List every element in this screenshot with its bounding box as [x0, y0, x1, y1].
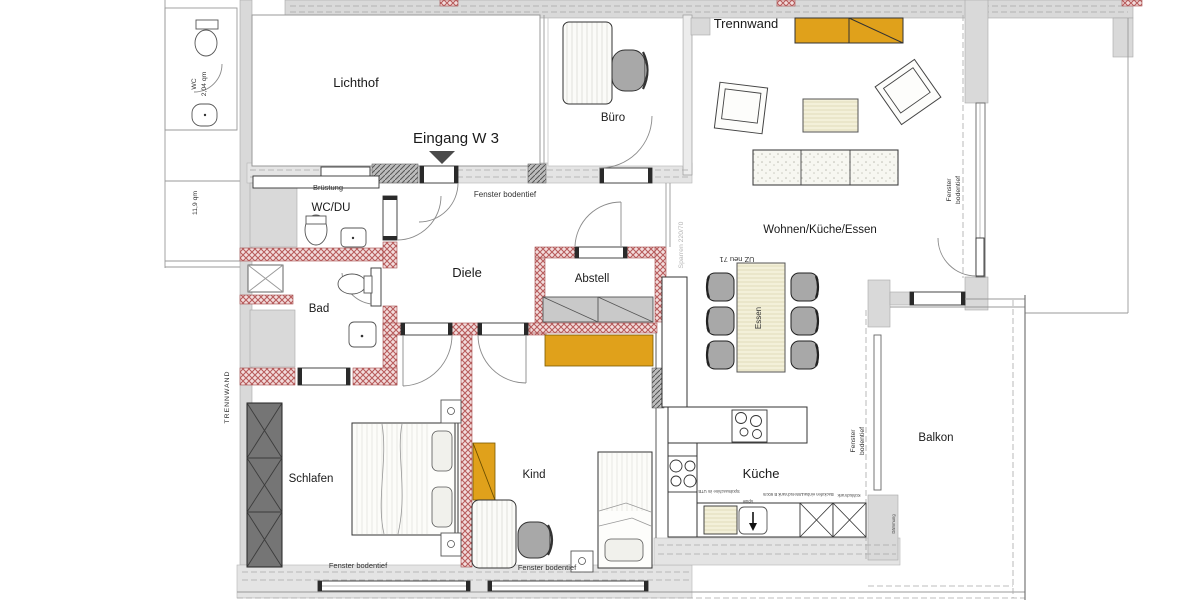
buero-desk: [563, 22, 612, 104]
label-spuele: Spüle: [742, 499, 753, 504]
abstell-label: Abstell: [575, 273, 610, 285]
sink-drainer: [704, 506, 737, 534]
new-wall-bad-bottom-left: [240, 368, 295, 385]
balkon-label: Balkon: [918, 432, 953, 444]
label-backofen: Backofen einbau: [802, 492, 834, 497]
toilet-tank-icon: [196, 20, 218, 29]
dining-chair-r1: [791, 273, 818, 301]
kueche-label: Küche: [743, 466, 780, 481]
balcony-left-wall-block: [868, 280, 890, 327]
abstell-door-arc: [575, 202, 621, 246]
lichthof-area: [252, 15, 683, 183]
bruestung-pier-2: [528, 164, 546, 183]
armchair-1: [714, 82, 767, 134]
entrance-door-arc: [419, 183, 458, 222]
wohnen-label: Wohnen/Küche/Essen: [763, 224, 877, 236]
bathtub: [298, 368, 350, 385]
kind-pillow: [605, 539, 643, 561]
abstell-cap-right: [623, 247, 627, 258]
living-furniture: [714, 18, 940, 185]
nightstand-1: [441, 400, 461, 423]
kind-door-arc: [478, 335, 526, 383]
kitchen-tall-unit: [662, 277, 687, 407]
schlafen-door-sill: [401, 323, 452, 335]
fenster-bodentief-kind: Fenster bodentief: [518, 563, 577, 572]
eingang-label: Eingang W 3: [413, 130, 499, 147]
new-wall-abstell-top-left: [535, 247, 575, 258]
wcdu-cap-top: [383, 196, 397, 200]
new-wall-bad-top: [240, 248, 383, 261]
new-wall-abstell-bottom: [530, 323, 657, 333]
entrance-cap-left: [420, 166, 424, 183]
bathtub-cap-right: [346, 368, 350, 385]
schlafen-window-cap-r: [466, 581, 470, 591]
toilet-bowl-icon: [195, 30, 217, 56]
label-unterschrank: Unterschrank B 60cm: [762, 492, 803, 497]
balcony-door-arc: [938, 238, 976, 276]
right-wall-upper: [965, 0, 988, 103]
kind-desk: [472, 500, 516, 568]
buero-cap-right: [648, 168, 652, 183]
area-11-9-label: 11,9 qm: [192, 191, 199, 215]
diele-label: Diele: [452, 265, 482, 280]
schlafen-cap-right: [448, 323, 452, 335]
wcdu-door-sill: [383, 196, 397, 240]
wcdu-toilet-tank-icon: [306, 216, 326, 224]
new-wall-diele-south-1: [383, 323, 401, 335]
dining-set: Essen: [707, 263, 818, 372]
buero-office-chair: [612, 50, 645, 91]
schlafen-furniture: [247, 400, 461, 567]
dining-chair-l1: [707, 273, 734, 301]
kitchen-counter-top: [668, 407, 807, 443]
kind-office-chair: [518, 522, 550, 558]
balcony-sill-cap-left: [910, 292, 914, 305]
balcony-door-leaf: [976, 238, 984, 276]
new-wall-bad-bottom-right: [353, 368, 397, 385]
dining-chair-r2: [791, 307, 818, 335]
wc-label: WC: [191, 78, 198, 89]
coffee-table: [803, 99, 858, 132]
schlafen-cap-left: [401, 323, 405, 335]
buero-cap-left: [600, 168, 604, 183]
bad-label: Bad: [309, 303, 329, 315]
fenster-bodentief-schlafen: Fenster bodentief: [329, 561, 388, 570]
balcony-door-sill: [910, 292, 965, 305]
buero-corner-block: [691, 18, 710, 35]
kitchen-counter-left: [668, 443, 697, 537]
schlafen-label: Schlafen: [289, 473, 334, 485]
kitchen-bottom-wall: [654, 538, 900, 565]
new-wall-shaft-bottom: [240, 295, 293, 304]
balcony-door-jamb: [890, 292, 910, 305]
wcdu-label: WC/DU: [312, 202, 351, 214]
wcdu-installation-block: [250, 183, 297, 247]
new-wall-schlafen-kind: [461, 335, 472, 567]
buero-partition-wall: [683, 15, 692, 175]
buero-door-sill: [600, 168, 652, 183]
trennwand-label: Trennwand: [714, 16, 779, 31]
fenster-bodentief-hall: Fenster bodentief: [474, 190, 537, 199]
kind-sideboard-orange: [545, 335, 653, 366]
bad-door-leaf: [371, 268, 381, 306]
sofa: [753, 150, 898, 185]
trennwand-vertical-label: TRENNWAND: [224, 371, 231, 424]
kind-label: Kind: [522, 469, 545, 481]
pillow-2: [432, 487, 452, 527]
armchair-1-frame: [714, 82, 767, 134]
entrance-door-sill: [420, 166, 458, 183]
bad-toilet-tank-icon: [364, 276, 372, 293]
kind-window-cap-r: [644, 581, 648, 591]
top-right-corner-wall: [1113, 18, 1133, 57]
bodentief-label-east-2: bodentief: [955, 176, 962, 204]
label-kuehlschrank: Kühlschrank: [837, 493, 861, 498]
kind-window-cap-l: [488, 581, 492, 591]
armchair-2-frame: [875, 59, 941, 124]
pillow-1: [432, 431, 452, 471]
new-wall-tab-1: [440, 0, 458, 6]
uz-neu-label: UZ neu 71: [719, 255, 754, 264]
wc-door-arc: [194, 64, 222, 92]
nightstand-2: [441, 533, 461, 556]
fenster-label-kitchen-1: Fenster: [850, 429, 857, 453]
bad-sink-drain-icon: [361, 335, 364, 338]
bad-toilet-icon: [338, 274, 366, 294]
dining-chair-r3: [791, 341, 818, 369]
essen-table-label: Essen: [754, 307, 763, 329]
new-wall-bad-right-upper: [383, 242, 397, 268]
label-spuelmaschine: Spülmaschine im UTB: [698, 489, 740, 494]
new-wall-diele-south-2: [452, 323, 478, 335]
bad-sink-icon: [349, 322, 376, 347]
lichthof-label: Lichthof: [333, 75, 379, 90]
double-bed-duvet: [353, 424, 429, 534]
dining-chair-l3: [707, 341, 734, 369]
new-wall-tab-2: [777, 0, 795, 6]
balcony-sill-cap-right: [961, 292, 965, 305]
fenster-label-east-1: Fenster: [946, 178, 953, 202]
wcdu-door-arc: [397, 196, 441, 240]
abstell-cap-left: [575, 247, 579, 258]
kind-cap-right: [524, 323, 528, 335]
armchair-2: [875, 59, 941, 124]
sideboard-left: [795, 18, 849, 43]
schlafen-window-cap-l: [318, 581, 322, 591]
kind-cap-left: [478, 323, 482, 335]
buero-label: Büro: [601, 112, 625, 124]
sparren-label: Sparren 220/70: [678, 221, 685, 268]
outside-wc-room: WC 2,04 qm 11,9 qm TRENNWAND: [165, 0, 240, 423]
bathtub-cap-left: [298, 368, 302, 385]
daemmung-label: Dämmung: [891, 514, 896, 534]
floorplan-canvas: WC 2,04 qm 11,9 qm TRENNWAND: [0, 0, 1200, 600]
wcdu-sink-drain-icon: [352, 237, 354, 239]
bruestung-label: Brüstung: [313, 183, 343, 192]
floorplan-drawing: WC 2,04 qm 11,9 qm TRENNWAND: [0, 0, 1200, 600]
kind-bed-duvet: [599, 453, 651, 511]
right-wall-lower: [965, 277, 988, 310]
schlafen-door-arc: [403, 335, 452, 386]
bad-installation-block: [250, 310, 295, 367]
bodentief-label-kitchen-2: bodentief: [859, 427, 866, 455]
abstell-door-sill: [575, 247, 627, 258]
wc-area-label: 2,04 qm: [201, 71, 208, 96]
kind-furniture: [472, 443, 652, 572]
kitchen-balcony-window: [874, 335, 881, 490]
washbasin-drain-icon: [204, 114, 206, 116]
wcdu-cap-bottom: [383, 236, 397, 240]
kind-door-sill: [478, 323, 528, 335]
entrance-cap-right: [454, 166, 458, 183]
new-wall-tab-3: [1122, 0, 1142, 6]
dining-chair-l2: [707, 307, 734, 335]
